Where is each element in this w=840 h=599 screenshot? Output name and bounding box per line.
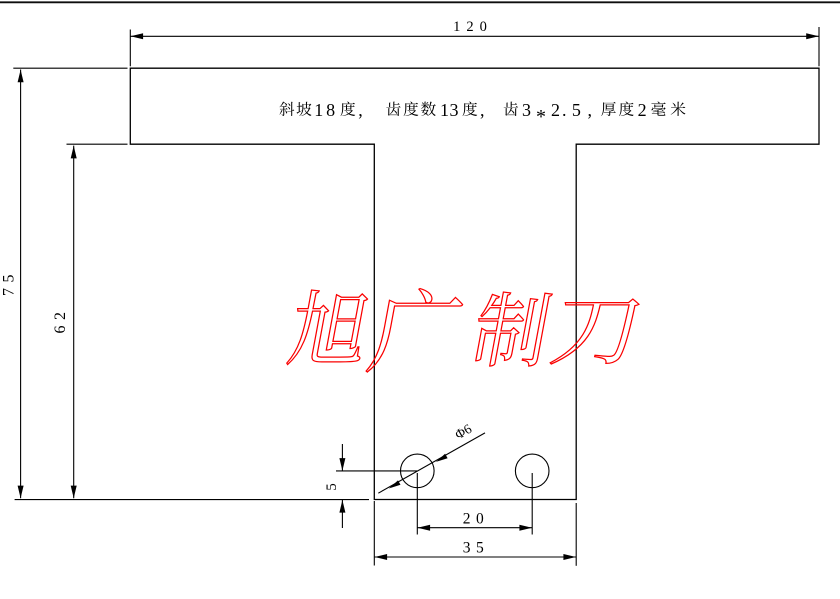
svg-text:5: 5	[324, 483, 340, 491]
svg-text:2: 2	[551, 100, 560, 120]
svg-text:3: 3	[450, 100, 459, 120]
svg-text:75: 75	[1, 269, 18, 296]
svg-text:5: 5	[572, 100, 581, 120]
svg-text:8: 8	[326, 100, 335, 120]
svg-text:.: .	[562, 100, 567, 120]
svg-text:1: 1	[314, 100, 323, 120]
svg-text:120: 120	[453, 19, 493, 35]
svg-text:2: 2	[638, 100, 647, 120]
svg-text:3: 3	[522, 100, 531, 120]
svg-text:,: ,	[588, 100, 593, 120]
svg-text:20: 20	[463, 511, 490, 528]
svg-text:*: *	[536, 106, 546, 128]
svg-text:62: 62	[52, 307, 69, 334]
svg-text:35: 35	[463, 540, 490, 557]
svg-text:1: 1	[440, 100, 449, 120]
svg-text:,: ,	[358, 100, 363, 120]
svg-text:,: ,	[480, 100, 485, 120]
